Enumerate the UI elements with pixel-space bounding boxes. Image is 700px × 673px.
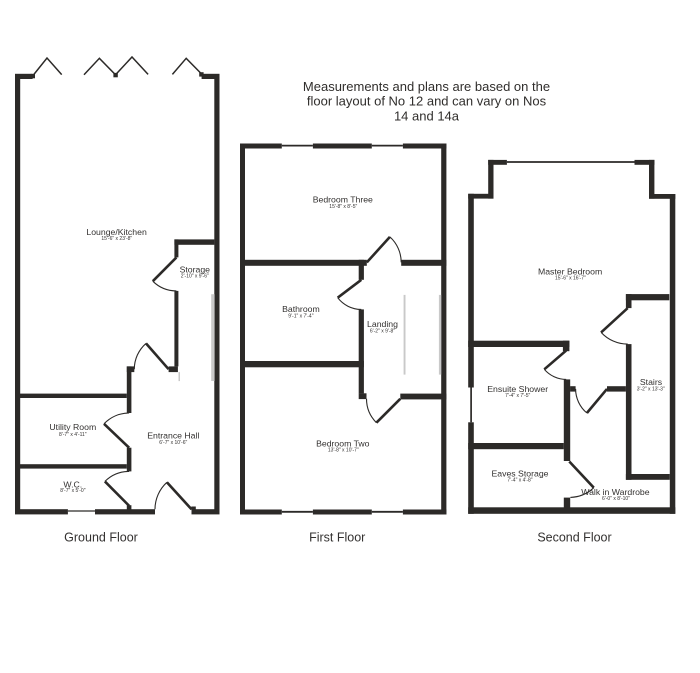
svg-text:8'-7" x 4'-11": 8'-7" x 4'-11" — [59, 432, 87, 438]
svg-text:Entrance Hall: Entrance Hall — [147, 431, 199, 441]
svg-text:Ground Floor: Ground Floor — [64, 530, 138, 544]
svg-text:7'-4" x 7'-5": 7'-4" x 7'-5" — [505, 393, 530, 399]
svg-text:14 and 14a: 14 and 14a — [394, 108, 460, 123]
svg-text:15'-6" x 16'-7": 15'-6" x 16'-7" — [555, 276, 586, 282]
svg-text:7'-4" x 4'-8": 7'-4" x 4'-8" — [507, 477, 532, 483]
svg-text:2'-10" x 9'-6": 2'-10" x 9'-6" — [181, 274, 209, 280]
svg-text:Second Floor: Second Floor — [537, 530, 611, 544]
svg-text:6'-0" x 8'-10": 6'-0" x 8'-10" — [602, 496, 630, 502]
svg-text:3'-2" x 13'-3": 3'-2" x 13'-3" — [637, 386, 665, 392]
svg-text:13'-8" x 10'-7": 13'-8" x 10'-7" — [328, 447, 359, 453]
svg-text:Landing: Landing — [367, 319, 398, 329]
svg-text:floor layout of No 12 and can: floor layout of No 12 and can vary on No… — [307, 94, 547, 109]
svg-text:First Floor: First Floor — [309, 530, 365, 544]
svg-text:6'-2" x 9'-8": 6'-2" x 9'-8" — [370, 329, 395, 335]
svg-text:15'-8" x 8'-5": 15'-8" x 8'-5" — [329, 204, 357, 210]
svg-text:8'-7" x 5'-0": 8'-7" x 5'-0" — [60, 488, 85, 494]
svg-text:15'-6" x 23'-8": 15'-6" x 23'-8" — [101, 236, 132, 242]
svg-text:6'-7" x 10'-6": 6'-7" x 10'-6" — [159, 440, 187, 446]
svg-text:9'-1" x 7'-4": 9'-1" x 7'-4" — [288, 313, 313, 319]
svg-text:Measurements and plans are bas: Measurements and plans are based on the — [303, 79, 550, 94]
svg-text:Utility Room: Utility Room — [49, 422, 96, 432]
